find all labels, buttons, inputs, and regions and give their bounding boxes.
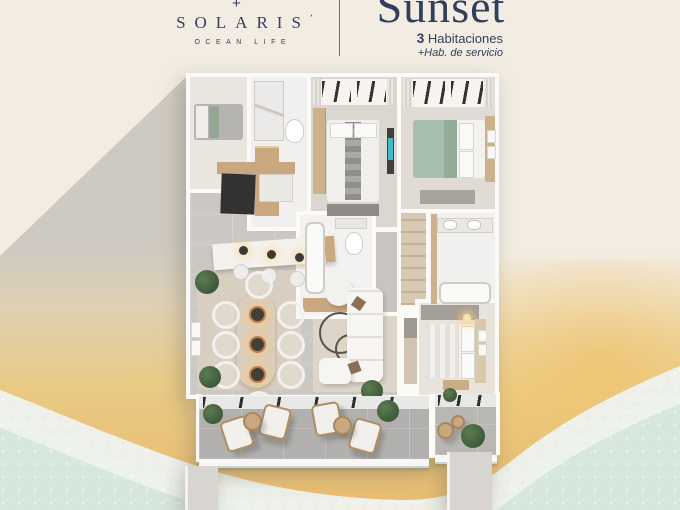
wall-art [487, 130, 496, 143]
plant [195, 270, 219, 294]
fridge [220, 173, 255, 214]
pillow [354, 123, 377, 138]
wall-art [478, 330, 487, 342]
brand-trademark: ’ [310, 13, 313, 23]
plant [377, 400, 399, 422]
window-pane [322, 81, 351, 102]
brand-plus-icon: + [232, 0, 241, 12]
bathtub [305, 222, 325, 294]
window-pane [413, 81, 445, 104]
sage-blanket [413, 120, 457, 178]
dining-chair [212, 331, 240, 359]
sink-counter [335, 218, 367, 229]
dining-chair [212, 301, 240, 329]
tv-screen [388, 138, 393, 160]
master-bathtub [439, 282, 491, 304]
table-lamp [249, 366, 266, 383]
wall-art [191, 340, 201, 356]
service-room-spec: +Hab. de servicio [355, 47, 503, 59]
unit-name: Sunset [366, 0, 516, 30]
bedrooms-label: Habitaciones [428, 31, 503, 46]
plant [443, 388, 457, 402]
bedroom-1-window [403, 79, 493, 107]
pillow [459, 151, 474, 178]
wall-art [478, 344, 487, 356]
brand-name: SOLARIS’ [160, 13, 320, 33]
shower [254, 81, 284, 141]
window-pane [357, 81, 386, 102]
service-bed-blanket [209, 106, 219, 138]
unit-specs: 3 Habitaciones +Hab. de servicio [355, 31, 503, 59]
table-lamp [249, 306, 266, 323]
poster: + SOLARIS’ OCEAN LIFE Sunset 3 Habitacio… [0, 0, 680, 510]
bedroom-2-window [313, 79, 395, 105]
floor-plan [185, 72, 500, 510]
bed-quilt [425, 324, 459, 378]
bedrooms-count: 3 [417, 31, 425, 46]
toilet [285, 119, 304, 143]
pillow [459, 123, 474, 150]
foot-bench [327, 204, 379, 216]
service-bed-pillow [196, 106, 208, 138]
bedrooms-spec: 3 Habitaciones [355, 31, 503, 46]
plant [461, 424, 485, 448]
curtain [387, 79, 395, 105]
kitchen-counter [217, 162, 295, 174]
wardrobe [313, 108, 326, 194]
sink [467, 220, 481, 230]
terrace-table [243, 412, 262, 431]
toilet [345, 232, 363, 255]
pendant-light [295, 253, 304, 262]
bed-bench [420, 190, 475, 204]
terrace-table [333, 416, 352, 435]
curtain [403, 79, 412, 107]
bedside-lamp [463, 314, 471, 322]
wall-art [487, 146, 496, 159]
curtain [313, 79, 321, 105]
glass-railing [199, 459, 429, 468]
sofa-chaise [319, 358, 351, 384]
pillow [461, 353, 475, 379]
header-divider [339, 0, 340, 56]
dining-chair [277, 361, 305, 389]
closet-corridor [401, 213, 429, 305]
sink [443, 220, 457, 230]
window-pane [451, 81, 483, 104]
plant [203, 404, 223, 424]
tv-console-top [404, 318, 417, 338]
building-column-right [447, 452, 492, 510]
pillow [461, 326, 475, 352]
appliance [259, 174, 293, 202]
wall-art [191, 322, 201, 338]
building-column-left [185, 466, 218, 510]
pillow [330, 123, 353, 138]
dining-chair [245, 271, 273, 299]
curtain [484, 79, 493, 107]
pendant-light [267, 250, 276, 259]
dining-chair [277, 331, 305, 359]
terrace-table [451, 415, 465, 429]
brand-tagline: OCEAN LIFE [160, 39, 320, 46]
dining-chair [277, 301, 305, 329]
plant [199, 366, 221, 388]
terrace-wall-right [496, 392, 500, 455]
table-lamp [249, 336, 266, 353]
brand-name-text: SOLARIS [176, 13, 310, 32]
pendant-light [239, 246, 248, 255]
bar-stool [289, 271, 305, 287]
